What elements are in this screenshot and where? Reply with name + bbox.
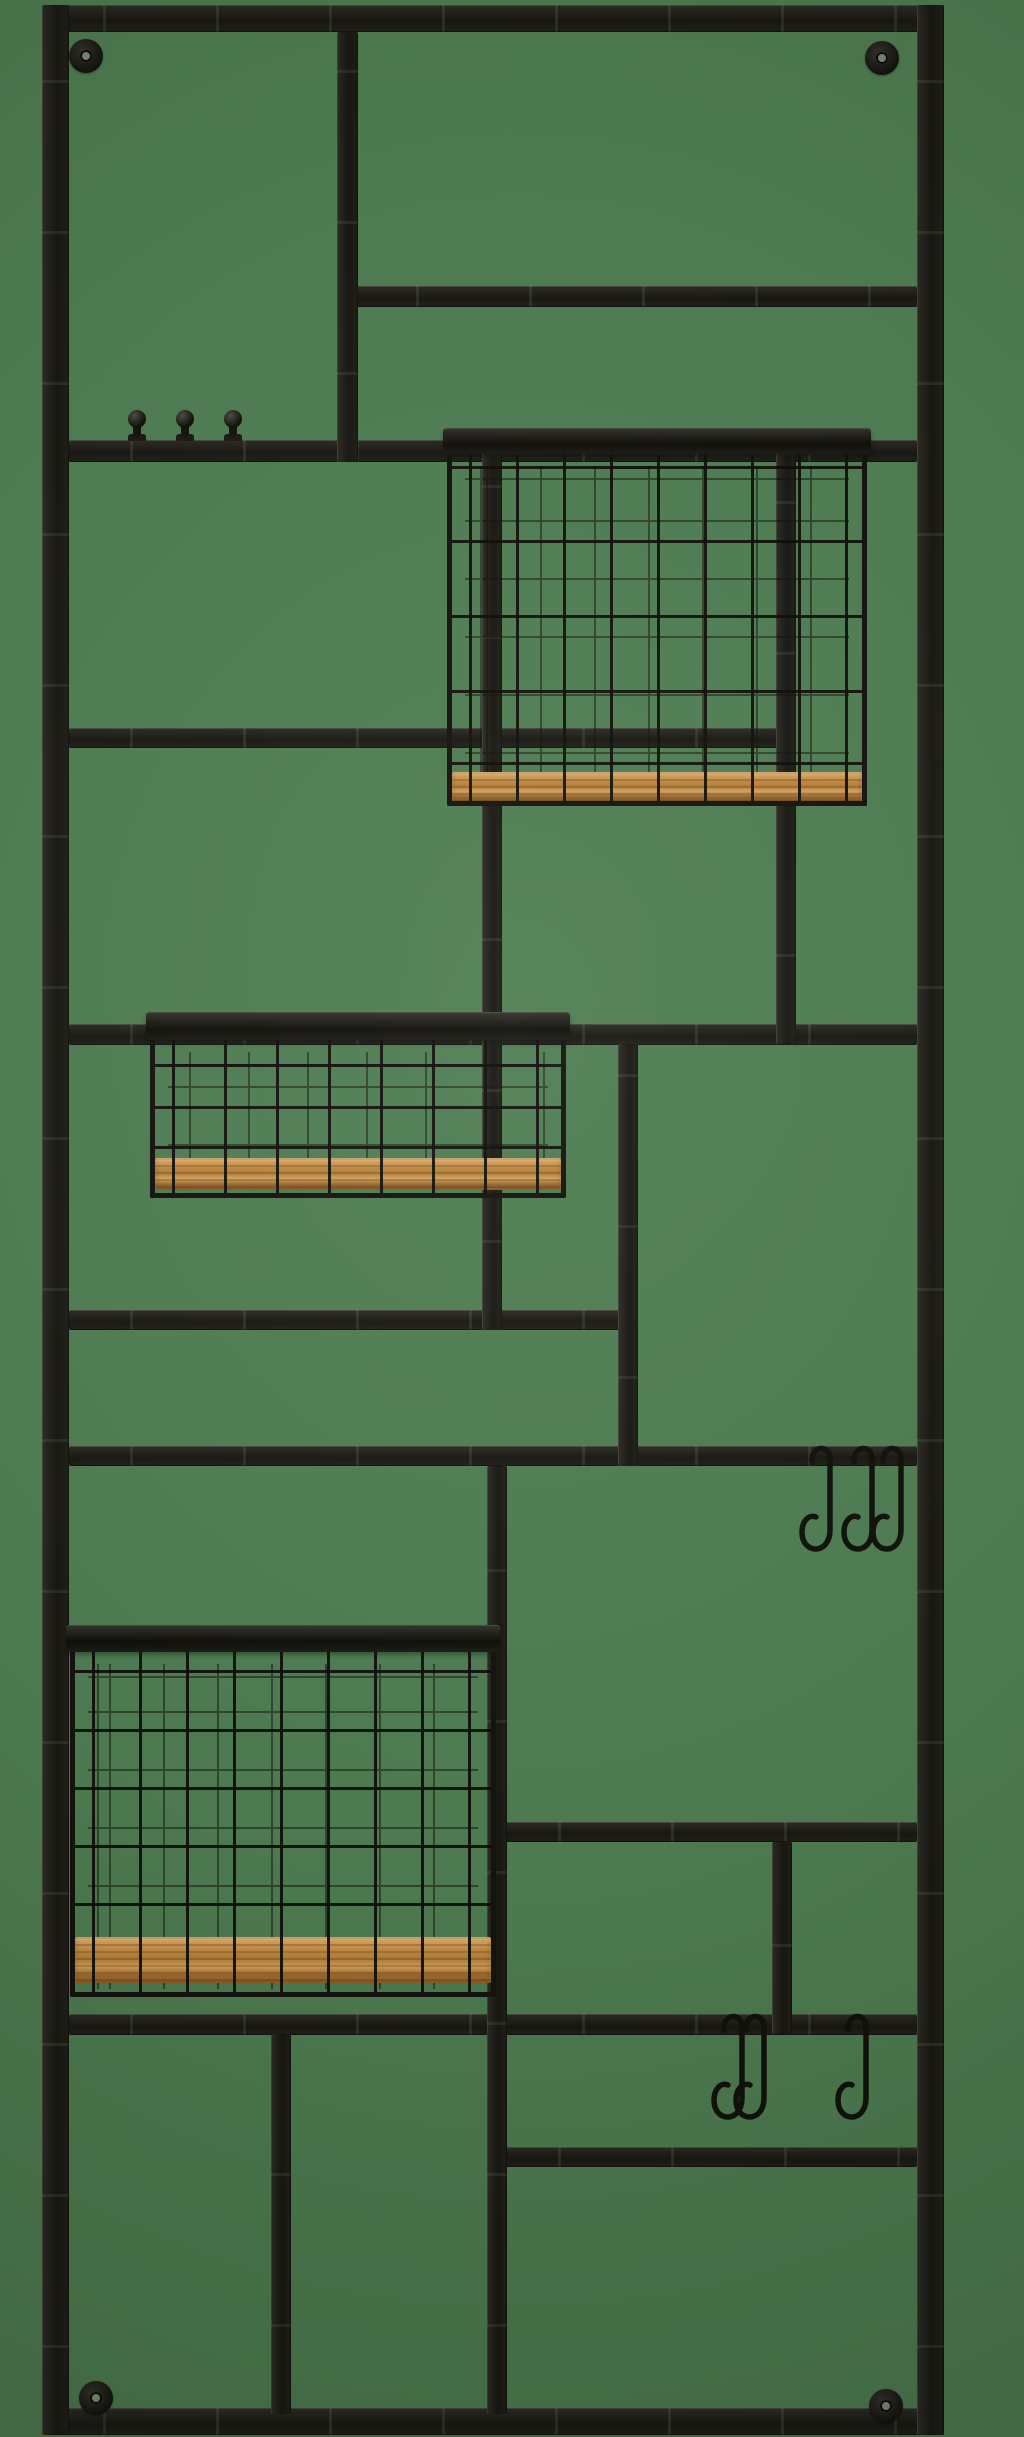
basket-bottom-rail (447, 801, 867, 806)
basket-wire-row (449, 690, 865, 693)
basket-wire-row (152, 1106, 564, 1109)
basket-front-wires (74, 1650, 492, 1994)
basket-rim (443, 428, 871, 454)
basket-side-left (150, 1036, 155, 1198)
basket-rim (146, 1012, 570, 1040)
divider-v1 (337, 32, 358, 462)
frame-top (42, 5, 944, 32)
basket-side-right (491, 1648, 496, 1997)
divider-h1 (355, 286, 917, 307)
screw-hole-icon (90, 2392, 102, 2404)
s-hook-6 (832, 2004, 876, 2144)
basket-wire-row (72, 1787, 494, 1790)
basket-side-right (561, 1036, 566, 1198)
basket-wire-row (72, 1845, 494, 1848)
basket-wire-row (72, 1729, 494, 1732)
basket-front-wires (154, 1038, 562, 1195)
divider-h6 (69, 1446, 917, 1466)
wall-bracket-3 (79, 2381, 113, 2415)
screw-hole-icon (876, 52, 888, 64)
wall-bracket-4 (869, 2389, 903, 2423)
wire-basket-top (447, 428, 867, 806)
divider-h7 (497, 1822, 917, 1842)
frame-left (42, 5, 69, 2435)
frame-right (917, 5, 944, 2435)
divider-h5 (69, 1310, 636, 1330)
basket-wire-row (449, 762, 865, 765)
screw-hole-icon (80, 50, 92, 62)
basket-wire-row (449, 615, 865, 618)
basket-wire-row (152, 1064, 564, 1067)
basket-bottom-rail (70, 1992, 496, 1997)
peg-knob-ball (128, 410, 146, 428)
wire-basket-middle (150, 1012, 566, 1198)
basket-wire-row (72, 1670, 494, 1673)
s-hook-1 (796, 1436, 840, 1576)
basket-wire-row (152, 1146, 564, 1149)
basket-side-right (862, 450, 867, 806)
wall-rack-product-photo (0, 0, 1024, 2437)
basket-wire-row (72, 1903, 494, 1906)
s-hook-3 (867, 1436, 911, 1576)
wall-bracket-2 (865, 41, 899, 75)
peg-knob-ball (176, 410, 194, 428)
s-hook-5 (730, 2004, 774, 2144)
basket-rim (66, 1625, 500, 1652)
divider-v4 (618, 1044, 638, 1466)
wire-basket-bottom (70, 1625, 496, 1997)
screw-hole-icon (880, 2400, 892, 2412)
basket-bottom-rail (150, 1193, 566, 1198)
peg-knob-ball (224, 410, 242, 428)
basket-front-wires (451, 452, 863, 803)
divider-v7 (271, 2034, 291, 2414)
divider-h9 (497, 2147, 917, 2167)
wall-bracket-1 (69, 39, 103, 73)
basket-wire-row (449, 540, 865, 543)
basket-side-left (447, 450, 452, 806)
basket-side-left (70, 1648, 75, 1997)
basket-wire-row (449, 466, 865, 469)
divider-v6 (772, 1842, 792, 2034)
